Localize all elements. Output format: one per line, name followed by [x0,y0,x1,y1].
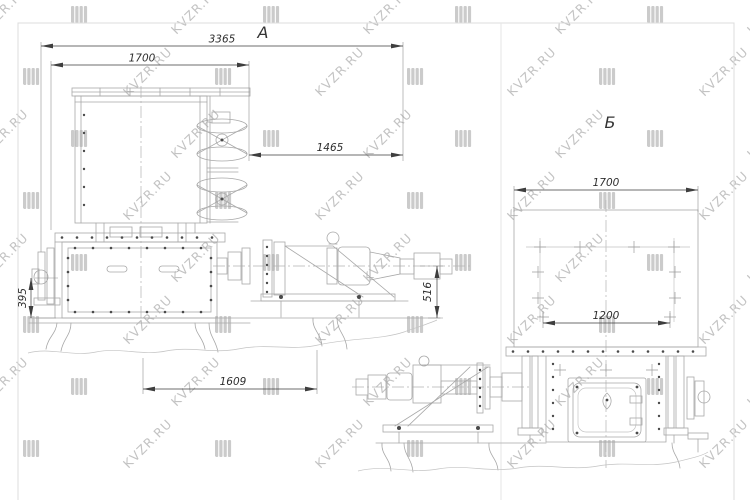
access-door [568,378,646,442]
view-b-lower-body [518,356,688,443]
view-a-drive-bracket-bolts [266,246,268,293]
dim-body-length-value: 1700 [129,53,156,65]
view-a-upper-box-bolts [83,114,85,206]
view-a-base [28,318,440,353]
dim-drive-height-value: 516 [422,282,434,302]
view-a-supports [96,223,195,242]
dim-total-length-value: 3365 [209,34,236,46]
drawing-sheet: { "sheet": { "background": "#ffffff", "f… [0,0,750,500]
view-a-flange-bolts [61,236,214,239]
view-a-top-rail [72,88,250,96]
view-a-pulleys [197,96,247,223]
pulley-upper [197,119,247,161]
dim-bolt-span-value: 1200 [593,310,620,322]
view-b-label: Б [605,113,616,132]
technical-drawing: 3365 1700 1465 395 516 1609 А [0,0,750,500]
eye-bolt-icon [327,232,339,244]
view-a-left-bracket [32,242,60,318]
view-a-lower-box [55,233,225,318]
dim-mount-height-value: 395 [17,288,29,308]
dim-body-width-value: 1700 [593,177,620,189]
sheet-frame [18,23,734,500]
view-a-body-bolts [67,247,213,314]
dim-base-length-value: 1609 [220,376,247,388]
view-a: 3365 1700 1465 395 516 1609 А [17,23,470,394]
view-b-drive [352,356,546,472]
view-a-label: А [257,23,269,42]
view-b-right-bracket [358,377,710,471]
view-a-upper-box [75,86,207,322]
pulley-lower [197,178,247,220]
eye-bolt-icon [419,356,429,366]
dim-drive-offset-value: 1465 [317,142,344,154]
view-b: 1700 1200 Б [352,113,710,472]
view-b-drive-bracket-bolts [479,369,481,407]
